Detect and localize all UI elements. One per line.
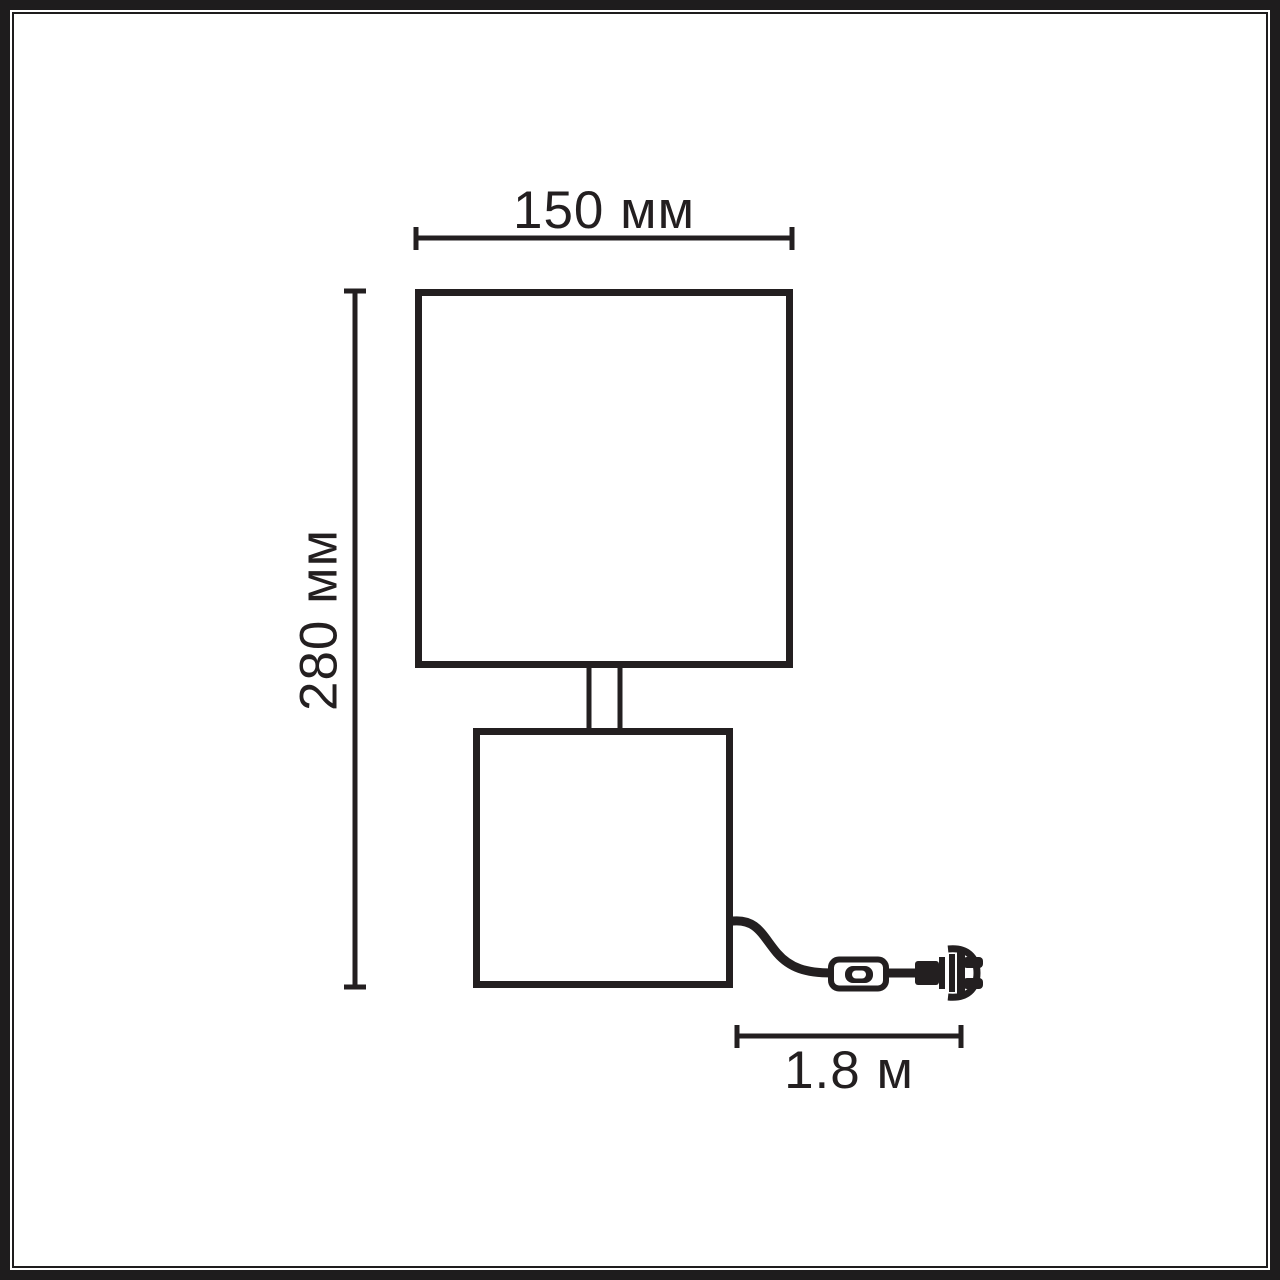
power-plug (915, 949, 983, 998)
lamp-base (477, 732, 730, 985)
power-cord (733, 921, 918, 973)
lamp-stem (589, 668, 620, 731)
cord-length-label: 1.8 м (737, 1044, 961, 1097)
shade-width-label: 150 мм (415, 184, 793, 237)
diagram-canvas: 150 мм 280 мм 1.8 м (0, 0, 1280, 1280)
lampshade (419, 293, 790, 665)
inline-switch (831, 960, 886, 989)
total-height-label: 280 мм (293, 529, 346, 711)
